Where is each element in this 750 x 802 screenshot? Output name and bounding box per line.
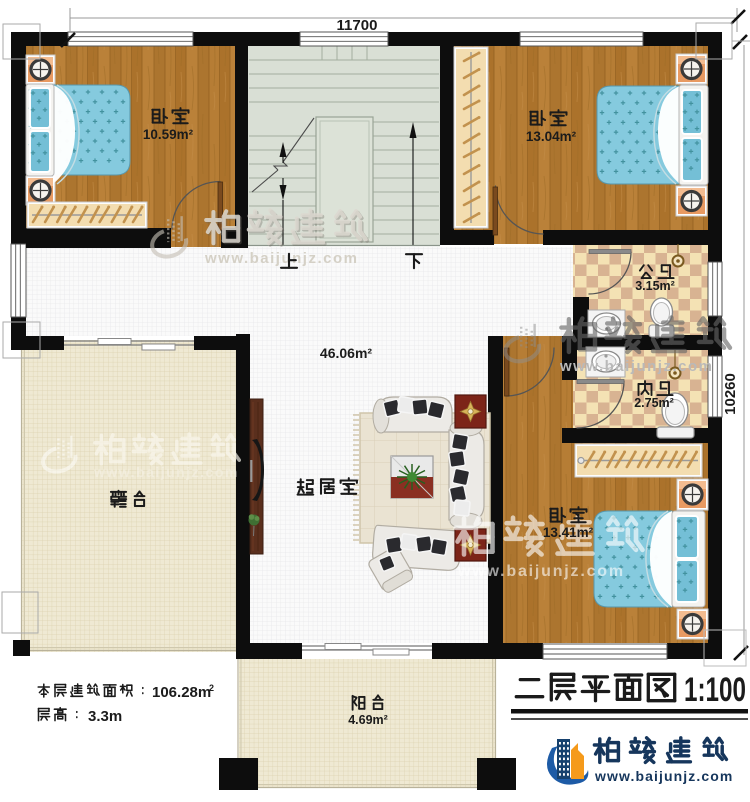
svg-text:www.baijunjz.com: www.baijunjz.com <box>594 768 733 784</box>
svg-text:13.41m²: 13.41m² <box>543 525 594 540</box>
svg-text:2.75m²: 2.75m² <box>634 396 674 410</box>
svg-text:10260: 10260 <box>722 373 739 415</box>
svg-text:www.baijunjz.com: www.baijunjz.com <box>93 464 239 480</box>
svg-text:46.06m²: 46.06m² <box>320 345 372 361</box>
svg-text:www.baijunjz.com: www.baijunjz.com <box>457 563 625 580</box>
svg-text:3.15m²: 3.15m² <box>635 279 675 293</box>
svg-text:106.28m: 106.28m <box>152 684 211 701</box>
svg-text:11700: 11700 <box>337 17 378 34</box>
svg-text:10.59m²: 10.59m² <box>143 127 194 142</box>
svg-text:www.baijunjz.com: www.baijunjz.com <box>559 358 713 375</box>
svg-text:4.69m²: 4.69m² <box>348 713 388 727</box>
svg-text:www.baijunjz.com: www.baijunjz.com <box>204 250 358 267</box>
svg-text:2: 2 <box>209 683 214 693</box>
svg-text:13.04m²: 13.04m² <box>526 129 577 144</box>
svg-text:3.3m: 3.3m <box>88 708 122 725</box>
svg-text:1:100: 1:100 <box>684 671 746 709</box>
